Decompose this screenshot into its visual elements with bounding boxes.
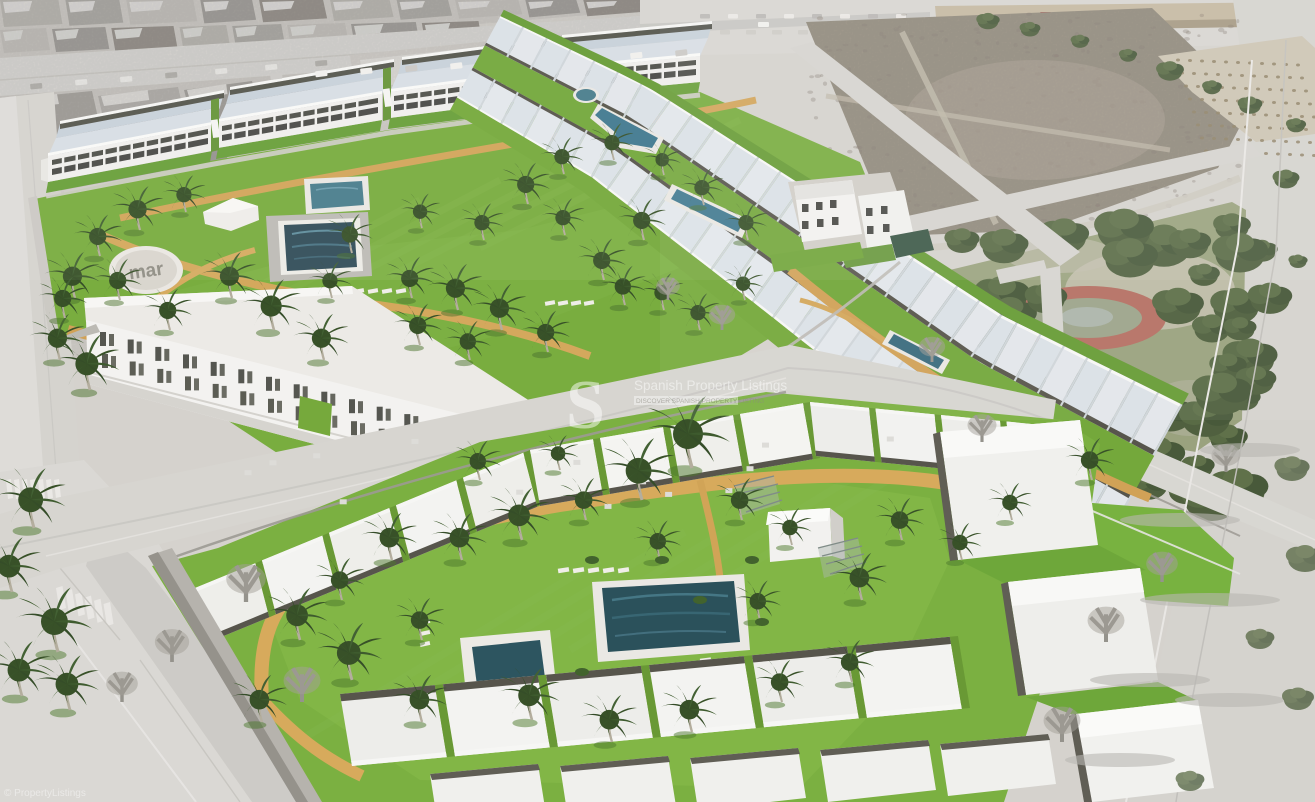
svg-text:S: S bbox=[566, 367, 605, 444]
svg-text:DISCOVER SPANISH PROPERTY LIST: DISCOVER SPANISH PROPERTY LISTING bbox=[636, 398, 764, 405]
svg-text:Spanish Property Listings: Spanish Property Listings bbox=[634, 378, 787, 393]
svg-text:© PropertyListings: © PropertyListings bbox=[4, 788, 86, 799]
